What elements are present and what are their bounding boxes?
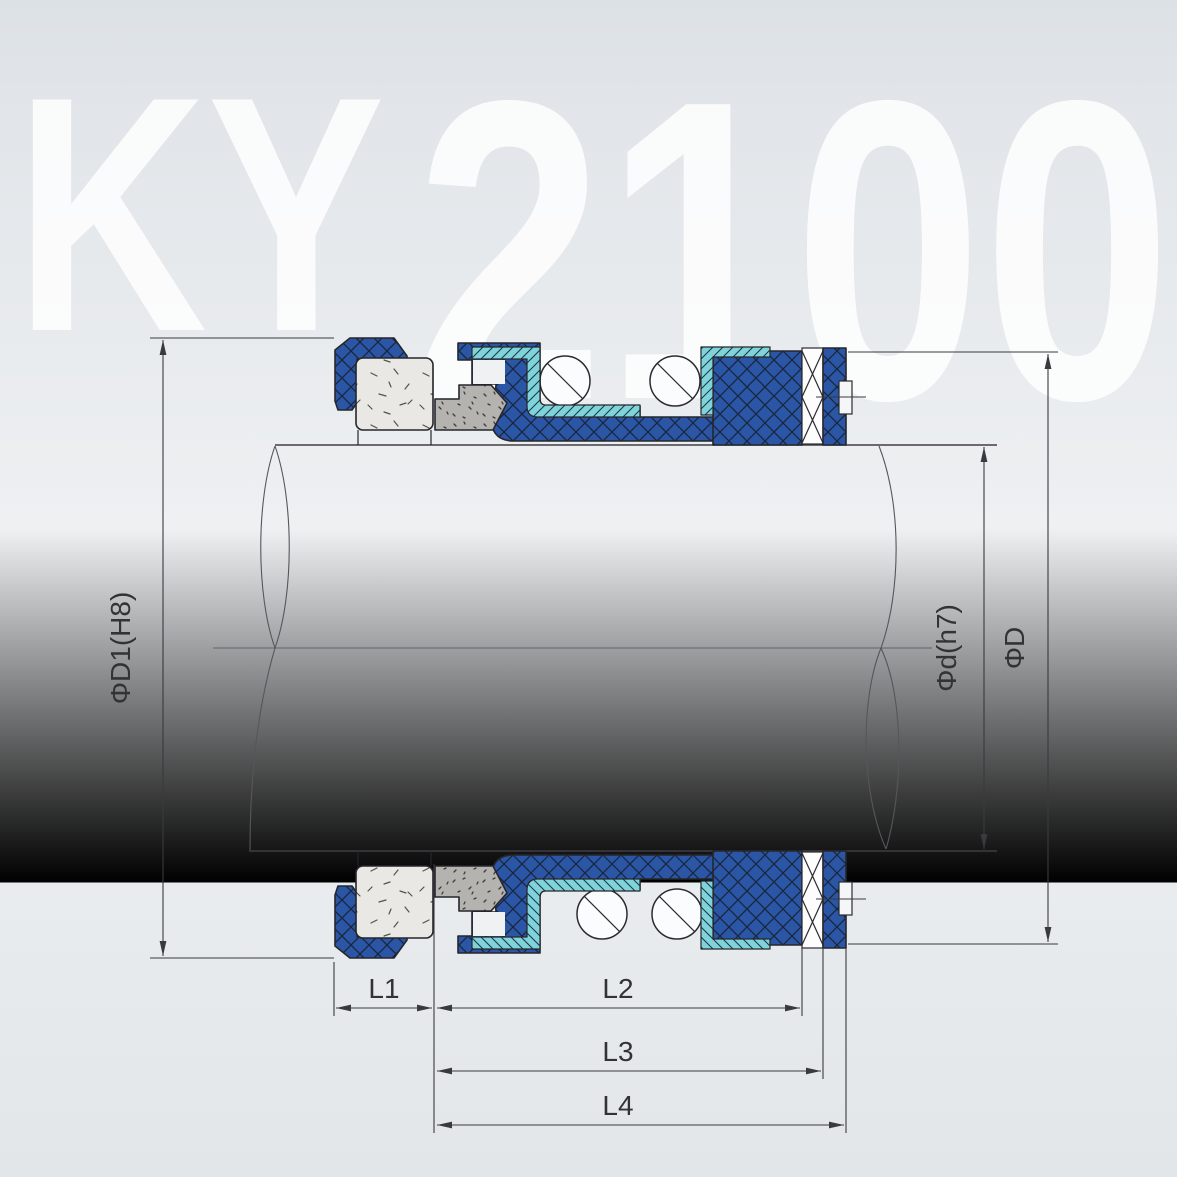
length-l4-label: L4 bbox=[602, 1090, 633, 1121]
wave-spring-band bbox=[802, 348, 823, 444]
stationary-seat-ring bbox=[356, 358, 433, 430]
seal-cross-section-drawing: KY 2100 bbox=[0, 0, 1177, 1177]
outer-diameter-label: ΦD bbox=[999, 627, 1030, 670]
length-l1-label: L1 bbox=[368, 973, 399, 1004]
retainer-gap bbox=[473, 360, 505, 384]
drive-collar-body bbox=[713, 351, 802, 445]
bore-diameter-label: ΦD1(H8) bbox=[105, 592, 136, 705]
length-l2-label: L2 bbox=[602, 973, 633, 1004]
shaft-diameter-label: Φd(h7) bbox=[931, 604, 962, 692]
watermark-letters: KY bbox=[15, 27, 385, 401]
mechanical-seal-drawing-page: KY 2100 bbox=[0, 0, 1177, 1177]
length-l3-label: L3 bbox=[602, 1036, 633, 1067]
